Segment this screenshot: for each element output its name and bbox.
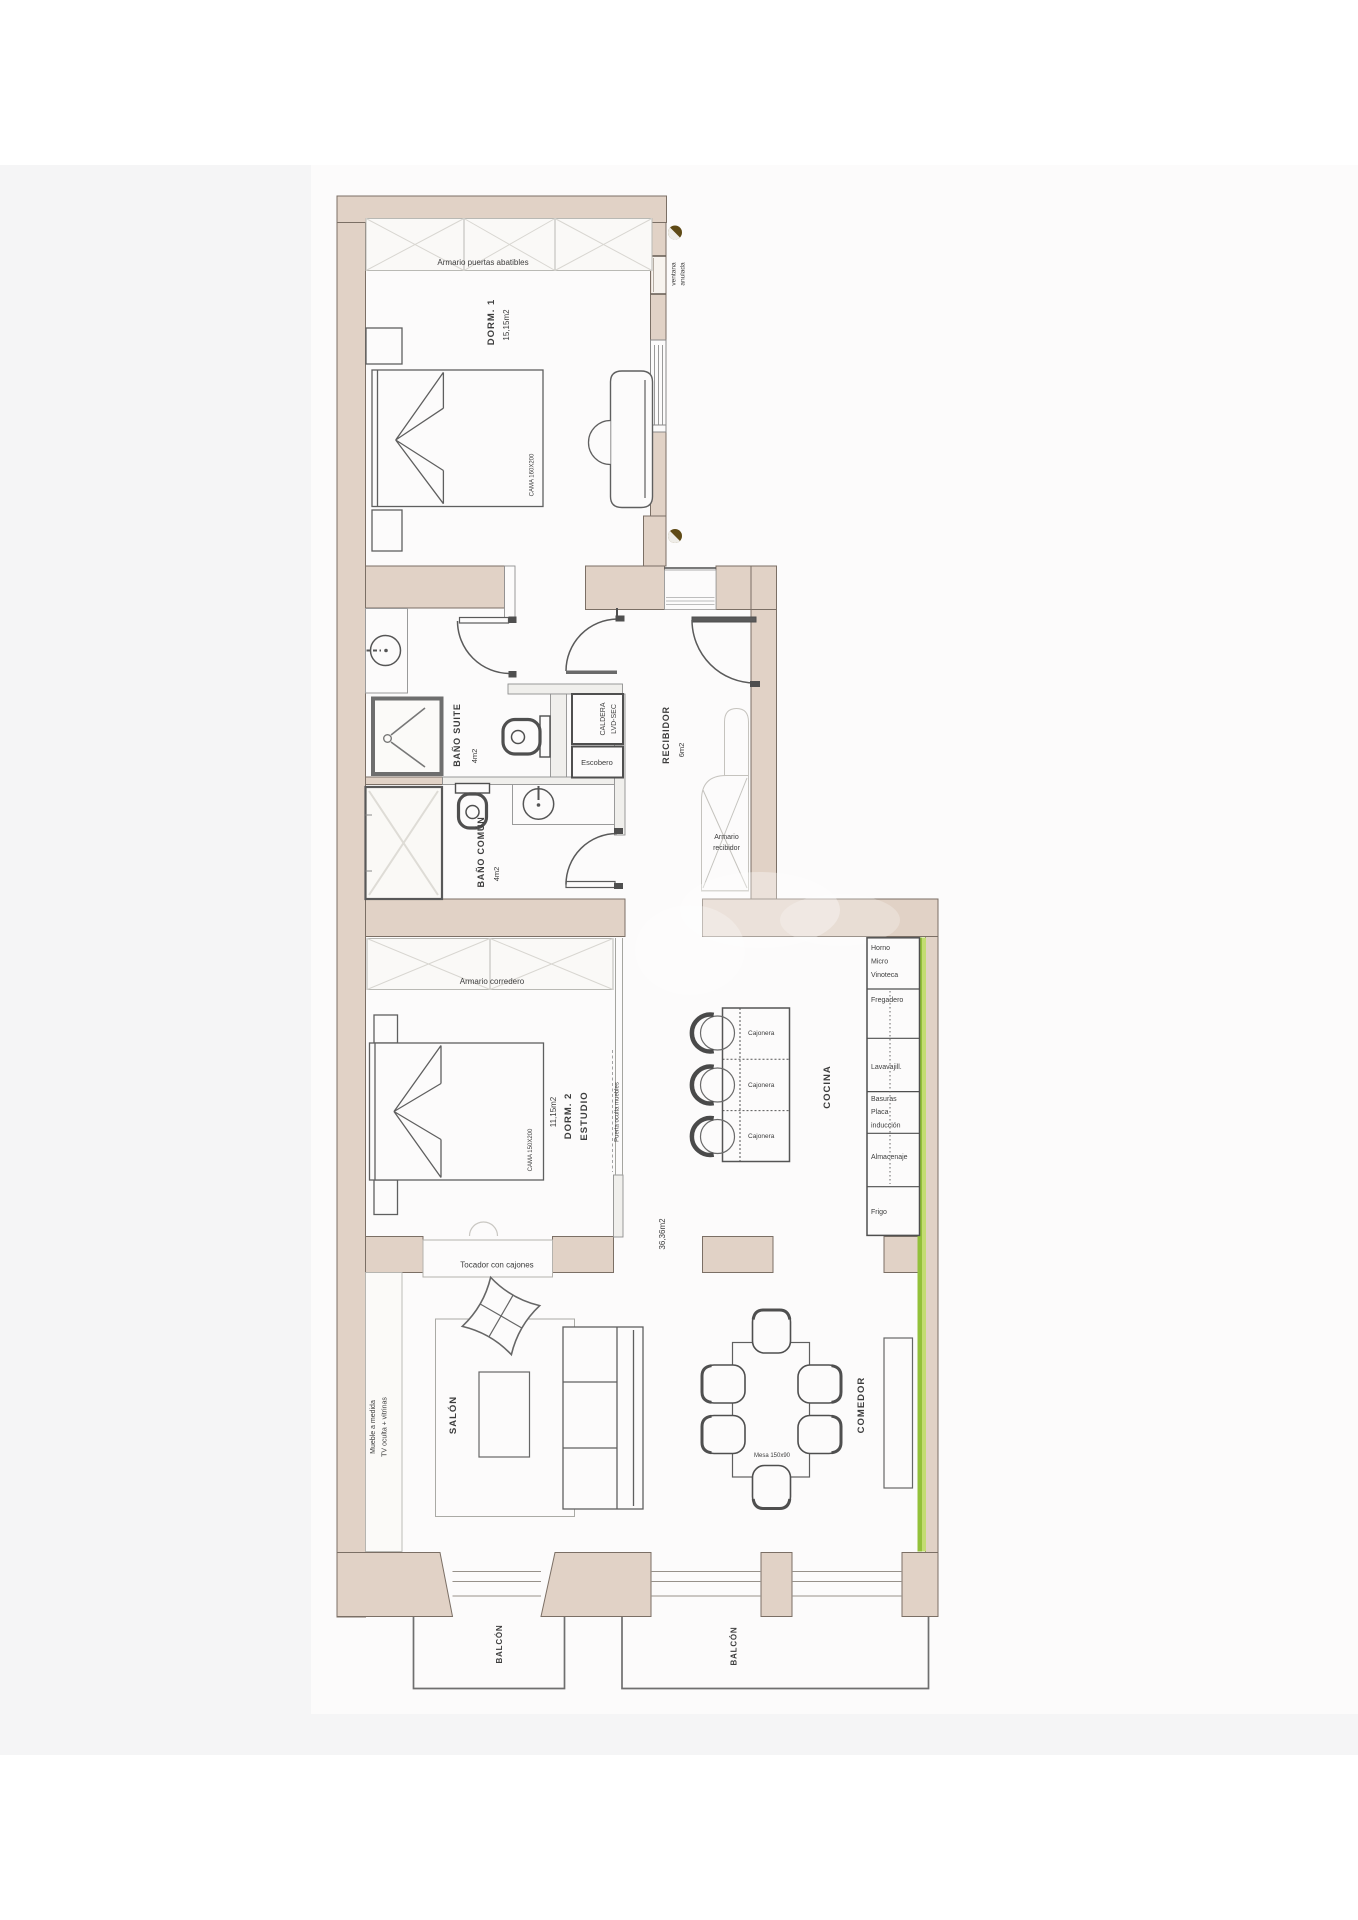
svg-text:DORM. 2: DORM. 2 [563,1093,574,1140]
svg-text:BALCÓN: BALCÓN [730,1626,739,1665]
svg-text:Vinoteca: Vinoteca [871,972,898,979]
svg-text:inducción: inducción [871,1123,901,1130]
svg-text:Almacenaje: Almacenaje [871,1154,908,1161]
svg-text:BAÑO SUITE: BAÑO SUITE [452,703,462,767]
svg-text:Fregadero: Fregadero [871,997,903,1004]
svg-text:COMEDOR: COMEDOR [856,1377,867,1434]
svg-text:Cajonera: Cajonera [748,1082,775,1089]
svg-text:Armario puertas abatibles: Armario puertas abatibles [437,258,528,267]
svg-text:Frigo: Frigo [871,1209,887,1216]
svg-text:CALDERA: CALDERA [600,702,607,735]
svg-text:CAMA 150X200: CAMA 150X200 [528,1128,534,1171]
svg-text:anulada: anulada [680,262,687,286]
svg-text:Cajonera: Cajonera [748,1030,775,1037]
svg-text:4m2: 4m2 [492,867,501,882]
svg-text:DORM. 1: DORM. 1 [486,299,497,346]
svg-text:Mesa 150x90: Mesa 150x90 [754,1453,791,1459]
svg-text:CAMA 160X200: CAMA 160X200 [530,453,536,496]
svg-text:BAÑO COMÚN: BAÑO COMÚN [475,817,486,888]
svg-text:TV oculta + vitrinas: TV oculta + vitrinas [382,1397,389,1457]
svg-text:Escobero: Escobero [581,758,613,767]
svg-text:Horno: Horno [871,945,890,952]
svg-text:Lavavajill.: Lavavajill. [871,1064,902,1071]
svg-text:Armario corredero: Armario corredero [460,977,525,986]
svg-text:Tocador con cajones: Tocador con cajones [460,1261,533,1270]
svg-text:recibidor: recibidor [713,845,741,852]
svg-text:Puerta oculta muebles: Puerta oculta muebles [615,1082,621,1142]
svg-text:ventana: ventana [671,262,678,286]
svg-text:ESTUDIO: ESTUDIO [579,1091,590,1140]
svg-text:Mueble a medida: Mueble a medida [370,1400,377,1454]
svg-text:Armario: Armario [714,834,739,841]
svg-text:Placa: Placa [871,1109,889,1116]
svg-text:COCINA: COCINA [822,1065,833,1108]
svg-text:36,36m2: 36,36m2 [658,1218,667,1250]
svg-text:6m2: 6m2 [677,743,686,758]
svg-text:4m2: 4m2 [470,749,479,764]
svg-text:Micro: Micro [871,959,888,966]
svg-text:15,15m2: 15,15m2 [502,309,511,341]
svg-text:BALCÓN: BALCÓN [495,1624,504,1663]
svg-text:LVD-SEC: LVD-SEC [611,704,618,734]
svg-text:SALÓN: SALÓN [447,1396,459,1434]
svg-text:Basuras: Basuras [871,1096,897,1103]
svg-text:Cajonera: Cajonera [748,1133,775,1140]
svg-text:RECIBIDOR: RECIBIDOR [661,706,671,764]
svg-text:11,15m2: 11,15m2 [549,1096,558,1127]
